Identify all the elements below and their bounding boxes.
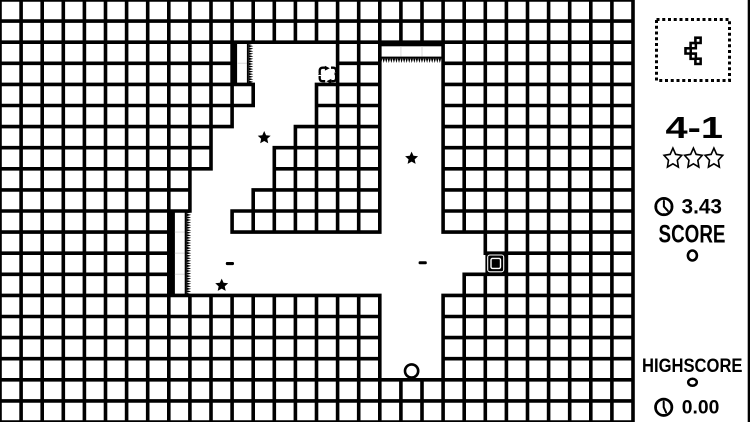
svg-text:0.00: 0.00 xyxy=(682,397,720,419)
svg-text:3.43: 3.43 xyxy=(682,196,723,219)
svg-text:SCORE: SCORE xyxy=(659,221,726,249)
svg-text:4-1: 4-1 xyxy=(666,110,724,145)
svg-text:HIGHSCORE: HIGHSCORE xyxy=(642,356,743,377)
